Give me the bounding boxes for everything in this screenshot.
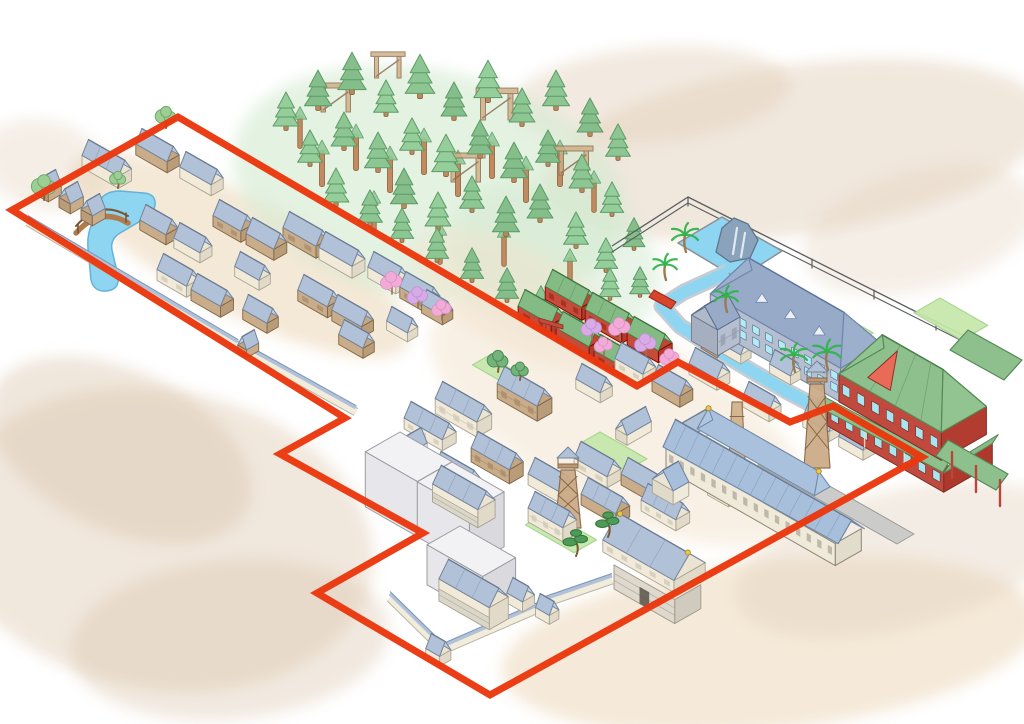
studio-park-illustrated-map bbox=[0, 0, 1024, 724]
wall-turret bbox=[507, 578, 535, 612]
tiled-wall bbox=[248, 346, 356, 413]
park-map-canvas bbox=[0, 0, 1024, 724]
lawn bbox=[914, 298, 988, 340]
